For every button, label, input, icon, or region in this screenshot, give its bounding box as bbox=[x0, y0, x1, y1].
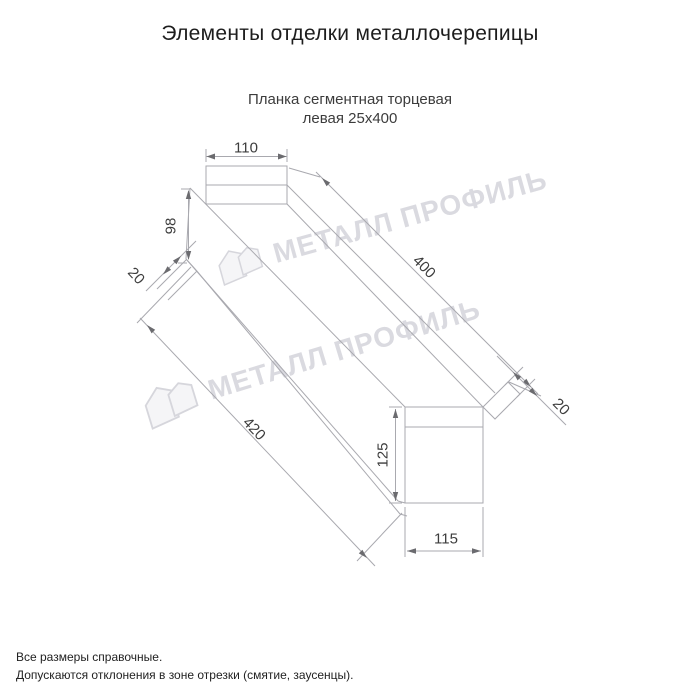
dim-20-left-lines bbox=[146, 241, 197, 300]
near-end-profile bbox=[186, 166, 287, 270]
footer-note-dimensions: Все размеры справочные. bbox=[16, 650, 162, 664]
far-end-profile bbox=[398, 382, 520, 516]
dim-115-label: 115 bbox=[434, 531, 458, 548]
footer-note-deviations: Допускаются отклонения в зоне отрезки (с… bbox=[16, 668, 353, 682]
dim-98-label: 98 bbox=[163, 218, 180, 235]
page: Элементы отделки металлочерепицы Планка … bbox=[0, 0, 700, 700]
long-edges bbox=[186, 185, 495, 514]
dim-125-label: 125 bbox=[375, 442, 392, 467]
dim-420-lines bbox=[137, 267, 402, 566]
technical-drawing bbox=[0, 0, 700, 700]
dim-110-label: 110 bbox=[234, 140, 258, 157]
